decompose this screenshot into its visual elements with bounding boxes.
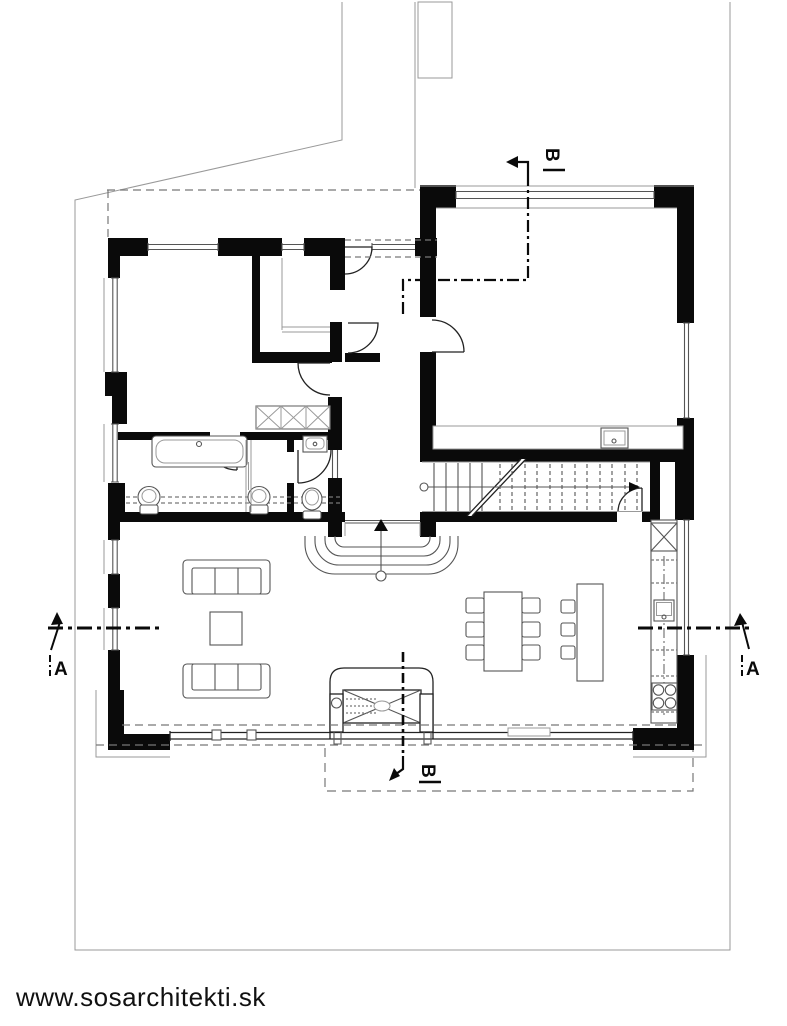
window-left-bedroom [111,278,119,372]
property-line [75,2,730,950]
section-a-label-right: A [746,659,760,680]
stair-direction-arrow [629,482,640,492]
bathroom-fixtures [126,436,340,519]
wc-toilet-icon [302,488,322,519]
section-a-marker-right: A [734,613,760,680]
stair-walk-start [420,483,428,491]
kitchen-island [577,584,603,681]
kitchen-counter [651,520,677,723]
section-b-marker-top: B [506,148,565,174]
window-top-closet [282,243,304,251]
wardrobe-icon [256,406,330,429]
garage-inner-face [420,186,694,208]
coffee-table [210,612,242,645]
door-bedroom [298,363,330,395]
cooktop-icon [652,683,677,710]
fireplace-pier-right [420,694,433,732]
section-b-label-bottom: B [417,764,438,778]
section-b-label-top: B [541,148,562,162]
door-garage [432,320,464,352]
site-boundary [75,2,730,950]
watermark-url: www.sosarchitekti.sk [16,982,266,1013]
floor-plan-canvas: A A B B [0,0,787,1026]
window-left-living-1 [111,540,119,574]
entry-arrow-origin [376,571,386,581]
garage-workbench [433,426,683,449]
window-left-bathroom [111,424,119,482]
dining-set [466,584,603,681]
section-b-arrow-bottom [389,768,400,781]
staircase [420,459,650,516]
door-stair-hall [618,488,642,512]
window-hall-top [372,243,415,251]
section-a-marker-left: A [50,612,68,680]
bar-stools [561,600,575,659]
bathtub-icon [152,436,247,467]
window-right-garage [683,323,690,418]
dining-table [484,592,522,671]
window-right-kitchen [683,520,690,655]
door-wc [298,450,331,483]
door-hall-corridor [348,323,378,353]
section-b-marker-bottom: B [389,756,441,782]
setback-dashed-line [107,190,453,238]
sofa-top [183,560,270,594]
kitchen-sink-icon [654,600,674,621]
south-glazing [170,728,633,741]
section-a-arrow-left [51,612,63,625]
section-a-label-left: A [54,659,68,680]
closet-shelf [282,258,330,332]
section-a-arrow-right [734,613,747,626]
window-hall-left-interior [333,450,338,478]
window-top-bedroom [148,243,218,251]
door-hall-north [345,247,372,274]
wc-sink-icon [303,436,327,452]
garage-door-band [456,191,654,199]
sofa-bottom [183,664,270,698]
section-b-arrow-top [506,156,518,168]
toilet-icon [138,487,160,515]
fireplace-pier-left [330,694,343,732]
living-room-furniture [183,560,270,698]
floor-plan-page: A A B B www.sosarchitekti.sk [0,0,787,1026]
driveway-gate [418,2,452,78]
